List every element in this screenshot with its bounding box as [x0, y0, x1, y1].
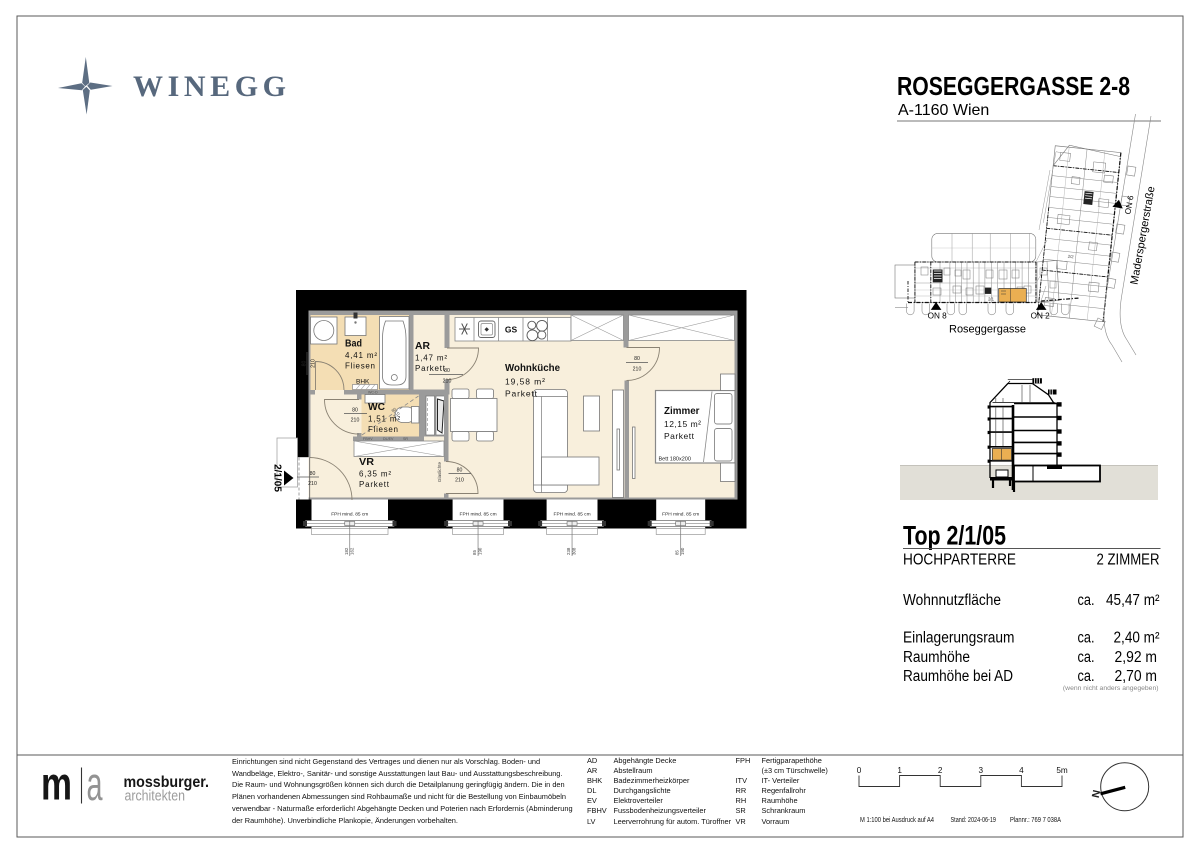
svg-text:210: 210: [443, 379, 452, 385]
svg-text:FBHV: FBHV: [363, 437, 373, 441]
svg-text:FPH mind. 85 cm: FPH mind. 85 cm: [554, 512, 591, 518]
svg-text:a: a: [87, 757, 104, 810]
svg-text:Fliesen: Fliesen: [368, 425, 398, 434]
svg-text:ON 6: ON 6: [1123, 194, 1135, 215]
svg-text:A-1160 Wien: A-1160 Wien: [898, 102, 989, 119]
svg-text:FPH mind. 85 cm: FPH mind. 85 cm: [331, 512, 368, 518]
svg-text:Glaslichte: Glaslichte: [437, 461, 442, 482]
svg-text:80: 80: [457, 468, 463, 474]
svg-text:2,92 m: 2,92 m: [1115, 649, 1158, 666]
svg-text:ca.: ca.: [1078, 592, 1095, 609]
svg-text:210: 210: [311, 359, 317, 368]
svg-text:190: 190: [478, 547, 483, 555]
svg-text:Wohnnutzfläche: Wohnnutzfläche: [903, 592, 1001, 609]
svg-text:FPH mind. 85 cm: FPH mind. 85 cm: [460, 512, 497, 518]
svg-text:4,41 m²: 4,41 m²: [345, 351, 377, 360]
svg-text:5m: 5m: [1056, 766, 1068, 775]
svg-text:Parkett: Parkett: [359, 480, 390, 489]
svg-text:80: 80: [310, 471, 316, 477]
svg-text:architekten: architekten: [125, 788, 186, 805]
svg-text:19,58 m²: 19,58 m²: [505, 377, 545, 387]
svg-text:2: 2: [938, 766, 943, 775]
svg-text:ON 2: ON 2: [1031, 311, 1051, 320]
svg-text:Parkett: Parkett: [664, 431, 695, 441]
svg-text:ca.: ca.: [1078, 668, 1095, 685]
svg-text:2,40 m²: 2,40 m²: [1114, 630, 1160, 647]
svg-text:Bett 180x200: Bett 180x200: [659, 457, 691, 463]
svg-text:4: 4: [1019, 766, 1024, 775]
svg-text:Plannr.: 769 7 038A: Plannr.: 769 7 038A: [1010, 815, 1062, 824]
svg-text:1: 1: [897, 766, 902, 775]
svg-text:238: 238: [566, 547, 571, 555]
svg-text:80: 80: [352, 408, 358, 414]
svg-text:WINEGG: WINEGG: [133, 70, 286, 103]
svg-text:ca.: ca.: [1078, 649, 1095, 666]
svg-text:80: 80: [302, 361, 308, 367]
svg-text:210: 210: [633, 367, 642, 373]
svg-text:Zimmer: Zimmer: [664, 405, 700, 417]
svg-text:190: 190: [680, 547, 685, 555]
svg-text:DL/EV: DL/EV: [383, 437, 394, 441]
svg-text:308: 308: [572, 547, 577, 555]
svg-text:Roseggergasse: Roseggergasse: [949, 324, 1026, 336]
svg-text:85: 85: [675, 550, 680, 555]
svg-text:ROSEGGERGASSE 2-8: ROSEGGERGASSE 2-8: [897, 73, 1130, 101]
svg-text:162: 162: [349, 547, 354, 555]
svg-text:0: 0: [857, 766, 862, 775]
svg-text:Raumhöhe: Raumhöhe: [903, 649, 970, 666]
svg-text:ON 8: ON 8: [928, 311, 948, 320]
svg-text:210: 210: [308, 481, 317, 487]
svg-text:182: 182: [344, 547, 349, 555]
svg-text:2 ZIMMER: 2 ZIMMER: [1097, 552, 1160, 569]
svg-text:WC-D: WC-D: [368, 391, 378, 395]
svg-text:Parkett: Parkett: [415, 364, 446, 373]
svg-text:AR: AR: [415, 341, 430, 352]
svg-text:2/1/05: 2/1/05: [272, 464, 283, 492]
svg-text:ca.: ca.: [1078, 630, 1095, 647]
svg-text:m: m: [41, 758, 72, 810]
svg-text:SR: SR: [403, 437, 408, 441]
svg-text:GS: GS: [505, 325, 518, 335]
svg-text:45,47 m²: 45,47 m²: [1106, 592, 1160, 609]
svg-text:12,15 m²: 12,15 m²: [664, 419, 701, 429]
svg-text:Top 2/1/05: Top 2/1/05: [903, 521, 1006, 551]
svg-text:6,35 m²: 6,35 m²: [359, 470, 391, 479]
svg-text:FPH mind. 85 cm: FPH mind. 85 cm: [662, 512, 699, 518]
svg-text:210: 210: [351, 418, 360, 424]
svg-text:210: 210: [455, 478, 464, 484]
svg-text:Stand: 2024-06-19: Stand: 2024-06-19: [951, 815, 997, 824]
svg-text:2/2: 2/2: [1068, 254, 1075, 260]
svg-text:VR: VR: [359, 457, 374, 468]
svg-text:Bad: Bad: [345, 339, 362, 350]
svg-text:Wohnküche: Wohnküche: [505, 362, 560, 374]
svg-text:Raumhöhe bei AD: Raumhöhe bei AD: [903, 668, 1013, 685]
svg-text:Fliesen: Fliesen: [345, 362, 375, 371]
svg-text:3: 3: [979, 766, 984, 775]
svg-text:1,47 m²: 1,47 m²: [415, 354, 447, 363]
svg-text:80: 80: [634, 356, 640, 362]
svg-text:M 1:100 bei Ausdruck auf A4: M 1:100 bei Ausdruck auf A4: [860, 815, 934, 824]
svg-text:Parkett: Parkett: [505, 389, 538, 399]
svg-text:1,51 m²: 1,51 m²: [368, 415, 400, 424]
svg-text:HOCHPARTERRE: HOCHPARTERRE: [903, 552, 1016, 569]
svg-text:2,70 m: 2,70 m: [1115, 668, 1158, 685]
svg-text:WC: WC: [368, 402, 385, 413]
svg-text:Einlagerungsraum: Einlagerungsraum: [903, 630, 1015, 647]
svg-text:85: 85: [472, 550, 477, 555]
svg-text:2/1: 2/1: [988, 296, 994, 301]
svg-text:(wenn nicht anders angegeben): (wenn nicht anders angegeben): [1063, 685, 1159, 692]
